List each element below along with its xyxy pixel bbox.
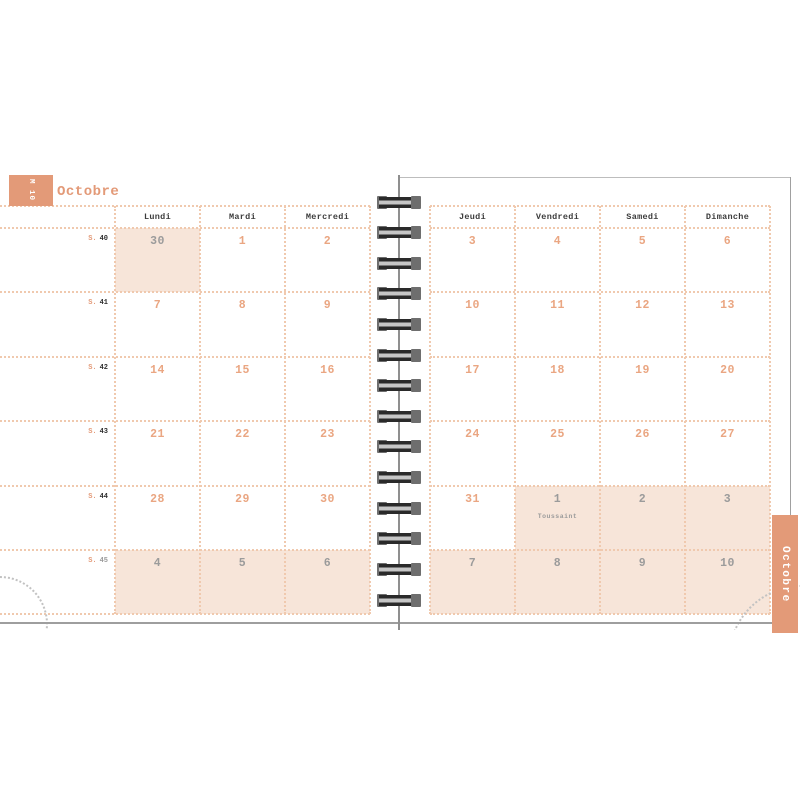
binding-ring (377, 532, 421, 545)
binding-ring (377, 318, 421, 331)
ring-cap (411, 502, 421, 515)
binding-ring (377, 471, 421, 484)
ring-cap (411, 226, 421, 239)
binding-ring (377, 349, 421, 362)
side-tab-label: Octobre (779, 546, 791, 603)
binding-ring (377, 379, 421, 392)
ring-cap (411, 563, 421, 576)
binding-ring (377, 410, 421, 423)
month-number-tab[interactable]: M 10 (9, 175, 53, 206)
binding-ring (377, 594, 421, 607)
binding-ring (377, 196, 421, 209)
binding-ring (377, 287, 421, 300)
ring-cap (411, 257, 421, 270)
ring-cap (411, 410, 421, 423)
ring-cap (411, 471, 421, 484)
month-side-tab[interactable]: Octobre (772, 515, 798, 633)
binding-ring (377, 226, 421, 239)
ring-cap (411, 379, 421, 392)
binding-ring (377, 440, 421, 453)
page-gap-line (398, 175, 400, 630)
month-number-label: M 10 (27, 179, 35, 201)
ring-cap (411, 318, 421, 331)
binding-ring (377, 563, 421, 576)
ring-cap (411, 196, 421, 209)
ring-cap (411, 349, 421, 362)
planner-spread: M 10 Octobre 3012S.40789S.41141516S.4221… (0, 0, 800, 800)
binding-ring (377, 502, 421, 515)
binding-ring (377, 257, 421, 270)
ring-cap (411, 287, 421, 300)
ring-cap (411, 532, 421, 545)
ring-cap (411, 440, 421, 453)
ring-cap (411, 594, 421, 607)
spiral-binding (0, 0, 800, 800)
